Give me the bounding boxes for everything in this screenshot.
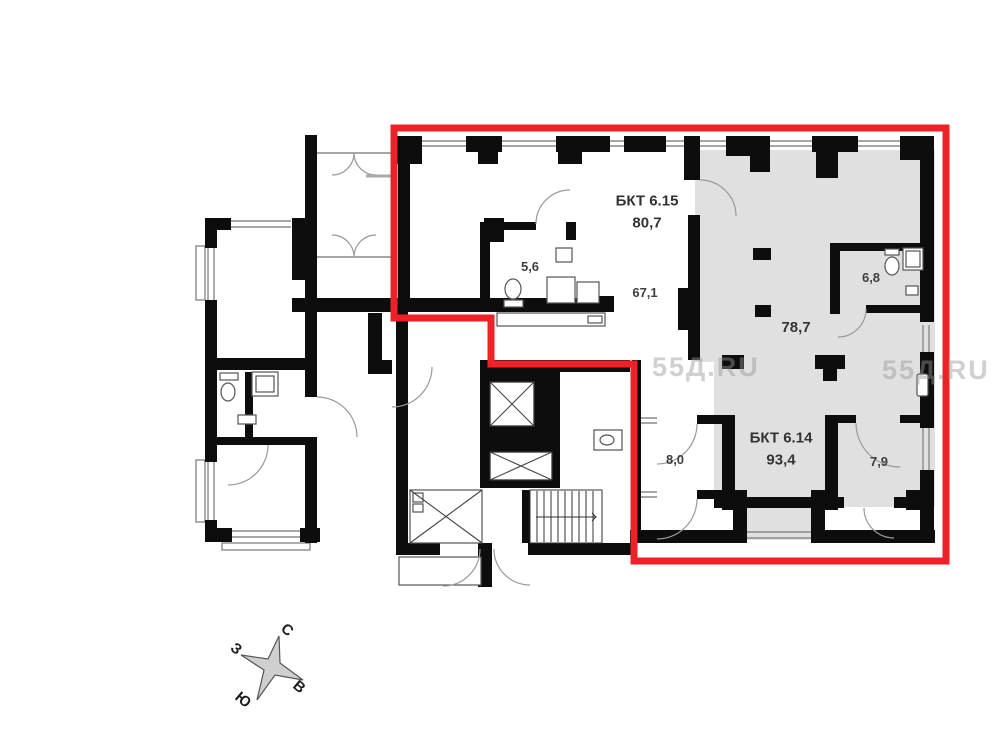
room-area-78-7: 78,7	[781, 320, 810, 337]
apartment-area: 80,7	[616, 212, 679, 234]
apartment-area: 93,4	[750, 449, 813, 471]
room-area-7-9: 7,9	[870, 455, 888, 469]
apartment-name: БКТ 6.15	[616, 190, 679, 212]
room-area-8-0: 8,0	[666, 453, 684, 467]
floorplan-drawing	[0, 0, 1000, 750]
watermark-text: 55Д.RU	[652, 352, 760, 383]
floorplan-page: БКТ 6.15 80,7 БКТ 6.14 93,4 5,6 67,1 6,8…	[0, 0, 1000, 750]
room-area-6-8: 6,8	[862, 271, 880, 285]
apartment-name: БКТ 6.14	[750, 427, 813, 449]
watermark-text-right: 55Д.RU	[882, 355, 990, 386]
stairs	[530, 490, 602, 543]
apartment-bkt-6-14-label[interactable]: БКТ 6.14 93,4	[750, 427, 813, 471]
room-area-5-6: 5,6	[521, 260, 539, 274]
room-area-67-1: 67,1	[632, 286, 657, 300]
apartment-bkt-6-15-label[interactable]: БКТ 6.15 80,7	[616, 190, 679, 234]
